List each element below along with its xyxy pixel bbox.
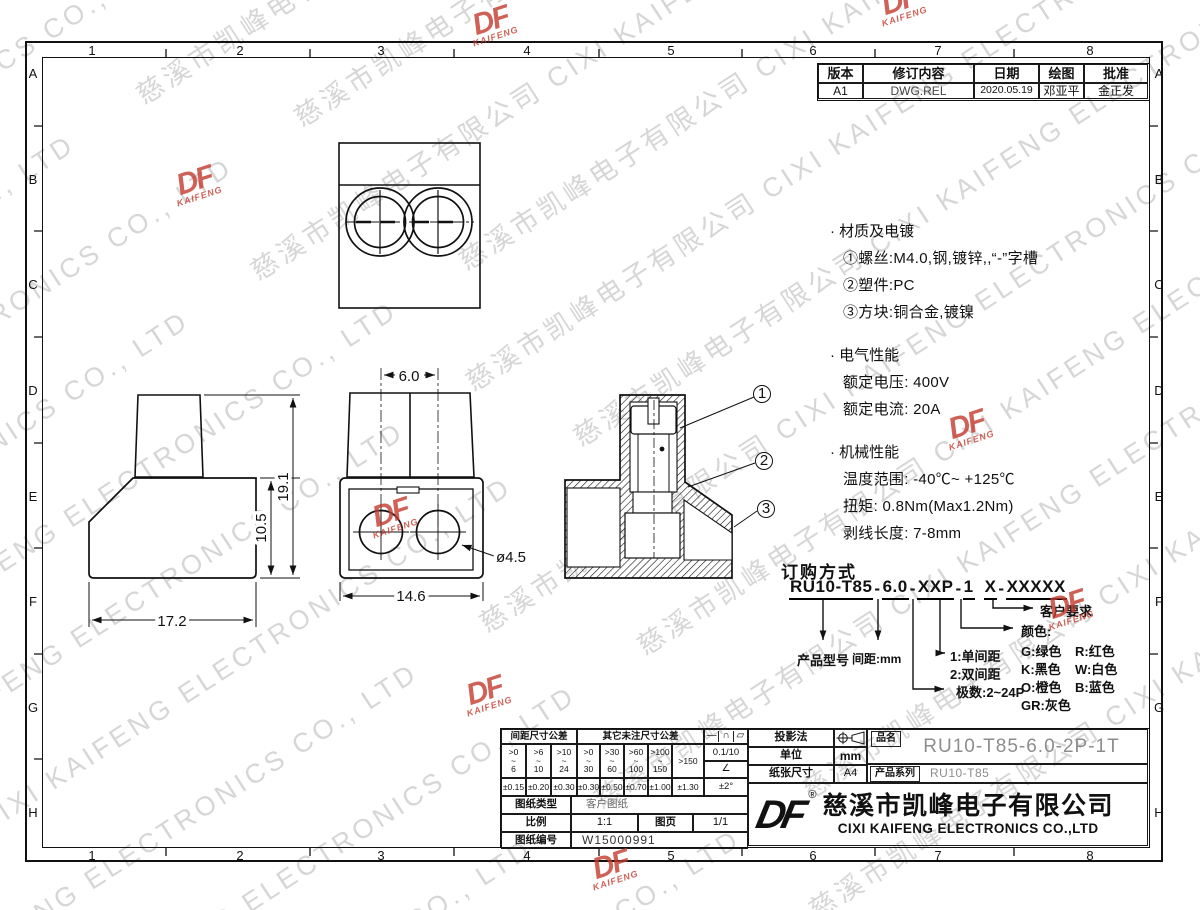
front-view <box>340 368 483 578</box>
electrical-item: 额定电压: 400V <box>843 371 1160 392</box>
side-view-dimensions <box>89 395 300 627</box>
dim-front-width: 14.6 <box>396 588 425 605</box>
docno-label: 图纸编号 <box>501 832 571 849</box>
ordering-segment-custom: XXXXX <box>1006 577 1067 600</box>
material-item: ③方块:铜合金,镀镍 <box>843 301 1160 322</box>
tol-value: ±1.30 <box>672 778 704 796</box>
tol-value: ±1.00 <box>648 778 672 796</box>
registered-mark: ® <box>808 790 816 802</box>
ordering-color-option: R:红色 <box>1075 641 1115 660</box>
series-label: 产品系列 <box>870 766 920 782</box>
tol-value: ±0.20 <box>526 778 551 796</box>
line-symbol: — <box>705 731 718 742</box>
unit-label: 单位 <box>748 747 834 765</box>
engineering-drawing-page: 慈溪市凯峰电子有限公司 CIXI KAIFENG ELECTRONICS CO.… <box>0 0 1200 910</box>
ordering-color-option: G:绿色 <box>1021 641 1061 660</box>
tol-range: >150 <box>672 744 704 778</box>
ordering-color-option: O:橙色 <box>1021 677 1061 696</box>
tol-value: ±0.70 <box>624 778 648 796</box>
section-metal-block <box>625 513 680 558</box>
revision-version: A1 <box>818 83 863 99</box>
doctype-value: 客户图纸 <box>571 796 748 814</box>
ordering-label-poles: 极数:2~24P <box>956 682 1024 701</box>
section-clamp <box>633 492 672 513</box>
company-cell: DF ® 慈溪市凯峰电子有限公司 CIXI KAIFENG ELECTRONIC… <box>748 783 1148 846</box>
ordering-color-option: K:黑色 <box>1021 659 1061 678</box>
balloon-3: 3 <box>762 500 770 517</box>
section-view <box>565 395 732 578</box>
title-block: 间距尺寸公差 其它未注尺寸公差 — ∩ ▱ >0 ~ 6 >6 ~ 10 >10… <box>500 728 1150 848</box>
electrical-item: 额定电流: 20A <box>843 398 1160 419</box>
section-dot <box>660 447 665 452</box>
tol-range: >6 ~ 10 <box>526 744 551 778</box>
top-view <box>339 143 480 308</box>
revision-header-version: 版本 <box>818 64 863 83</box>
kaifeng-logo: DF <box>753 795 807 835</box>
mechanical-item: 温度范围: -40℃~ +125℃ <box>843 468 1160 489</box>
sheet-value: 1/1 <box>693 814 748 832</box>
flatness-tol: 0.1/10 <box>704 744 748 761</box>
angle-tol: ±2° <box>704 778 748 796</box>
tol-range: >0 ~ 6 <box>501 744 526 778</box>
sheet-label: 图页 <box>638 814 693 832</box>
ordering-segment-pitch: 6.0 <box>882 577 909 600</box>
spec-notes: · 材质及电镀 ①螺丝:M4.0,钢,镀锌,,“-”字槽 ②塑件:PC ③方块:… <box>830 220 1160 543</box>
ordering-segment-color: X <box>984 577 998 600</box>
electrical-title: · 电气性能 <box>830 344 1160 365</box>
dim-hole-dia: ø4.5 <box>496 549 526 566</box>
tol-value: ±0.50 <box>600 778 624 796</box>
side-view <box>89 395 256 578</box>
revision-drawer: 邓亚平 <box>1039 83 1084 99</box>
dim-side-width: 17.2 <box>157 613 186 630</box>
dim-body-height: 10.5 <box>253 513 270 542</box>
ordering-label-spacing2: 2:双间距 <box>950 664 1001 683</box>
ordering-color-option: GR:灰色 <box>1021 695 1071 714</box>
series-value: RU10-T85 <box>930 767 989 780</box>
scale-label: 比例 <box>501 814 571 832</box>
ordering-label-color: 颜色: <box>1021 621 1051 640</box>
angle-symbol: ∠ <box>704 761 748 778</box>
ordering-label-pitch: 间距:mm <box>852 650 901 667</box>
shape-symbols-cell: — ∩ ▱ <box>704 729 748 744</box>
ordering-arrows <box>823 599 1033 689</box>
ordering-color-option: B:蓝色 <box>1075 677 1115 696</box>
company-name-en: CIXI KAIFENG ELECTRONICS CO.,LTD <box>838 822 1099 836</box>
tol-other-header: 其它未注尺寸公差 <box>577 729 704 744</box>
square-symbol: ▱ <box>734 731 747 742</box>
revision-header-drawer: 绘图 <box>1039 64 1084 83</box>
material-item: ②塑件:PC <box>843 274 1160 295</box>
scale-value: 1:1 <box>571 814 638 832</box>
revision-content: DWG.REL <box>863 83 974 99</box>
revision-header-date: 日期 <box>974 64 1039 83</box>
ordering-label-model: 产品型号 <box>797 650 849 669</box>
ordering-label-spacing1: 1:单间距 <box>950 646 1001 665</box>
arc-symbol: ∩ <box>718 731 733 742</box>
material-item: ①螺丝:M4.0,钢,镀锌,,“-”字槽 <box>843 247 1160 268</box>
dim-pitch: 6.0 <box>399 368 420 385</box>
tol-pitch-header: 间距尺寸公差 <box>501 729 577 744</box>
revision-header-content: 修订内容 <box>863 64 974 83</box>
tol-range: >100 ~ 150 <box>648 744 672 778</box>
paper-label: 纸张尺寸 <box>748 765 834 783</box>
dim-total-height: 19.1 <box>275 472 292 501</box>
projection-symbol-cell <box>834 729 867 747</box>
ordering-label-customer: 客户要求 <box>1040 601 1092 620</box>
tol-range: >60 ~ 100 <box>624 744 648 778</box>
series-cell: 产品系列 RU10-T85 <box>867 764 1148 783</box>
section-screw-slot <box>648 398 659 424</box>
ordering-separator: - <box>954 579 962 600</box>
revision-approver: 金正发 <box>1084 83 1148 99</box>
company-name-cn: 慈溪市凯峰电子有限公司 <box>822 793 1114 819</box>
balloon-1: 1 <box>758 385 766 402</box>
projection-label: 投影法 <box>748 729 834 747</box>
tol-value: ±0.30 <box>577 778 600 796</box>
product-name-value: RU10-T85-6.0-2P-1T <box>923 737 1119 757</box>
ordering-segment-poles: XXP <box>917 577 955 600</box>
revision-header-approver: 批准 <box>1084 64 1148 83</box>
tol-range: >10 ~ 24 <box>551 744 577 778</box>
ordering-separator: - <box>873 579 881 600</box>
ordering-color-option: W:白色 <box>1075 659 1117 678</box>
ordering-separator: - <box>909 579 917 600</box>
paper-value: A4 <box>834 765 867 783</box>
tol-range: >0 ~ 30 <box>577 744 600 778</box>
mechanical-item: 剥线长度: 7-8mm <box>843 522 1160 543</box>
mechanical-item: 扭矩: 0.8Nm(Max1.2Nm) <box>843 495 1160 516</box>
product-name-label: 品名 <box>871 731 901 747</box>
ordering-separator: - <box>997 579 1005 600</box>
tol-value: ±0.15 <box>501 778 526 796</box>
product-name-cell: 品名 RU10-T85-6.0-2P-1T <box>867 729 1148 764</box>
mechanical-title: · 机械性能 <box>830 441 1160 462</box>
revision-table: 版本 修订内容 日期 绘图 批准 A1 DWG.REL 2020.05.19 邓… <box>817 63 1150 101</box>
docno-value: W15000991 <box>571 832 748 849</box>
doctype-label: 图纸类型 <box>501 796 571 814</box>
balloon-2: 2 <box>760 452 768 469</box>
first-angle-projection-icon <box>836 731 866 745</box>
unit-value: mm <box>834 747 867 765</box>
tol-range: >30 ~ 60 <box>600 744 624 778</box>
material-title: · 材质及电镀 <box>830 220 1160 241</box>
tol-value: ±0.30 <box>551 778 577 796</box>
ordering-code: RU10-T85 - 6.0 - XXP - 1 X - XXXXX <box>789 577 1067 600</box>
revision-date: 2020.05.19 <box>974 83 1039 99</box>
ordering-segment-spacing: 1 <box>963 577 975 600</box>
ordering-segment-model: RU10-T85 <box>789 577 873 600</box>
section-left-cavity <box>567 488 620 567</box>
